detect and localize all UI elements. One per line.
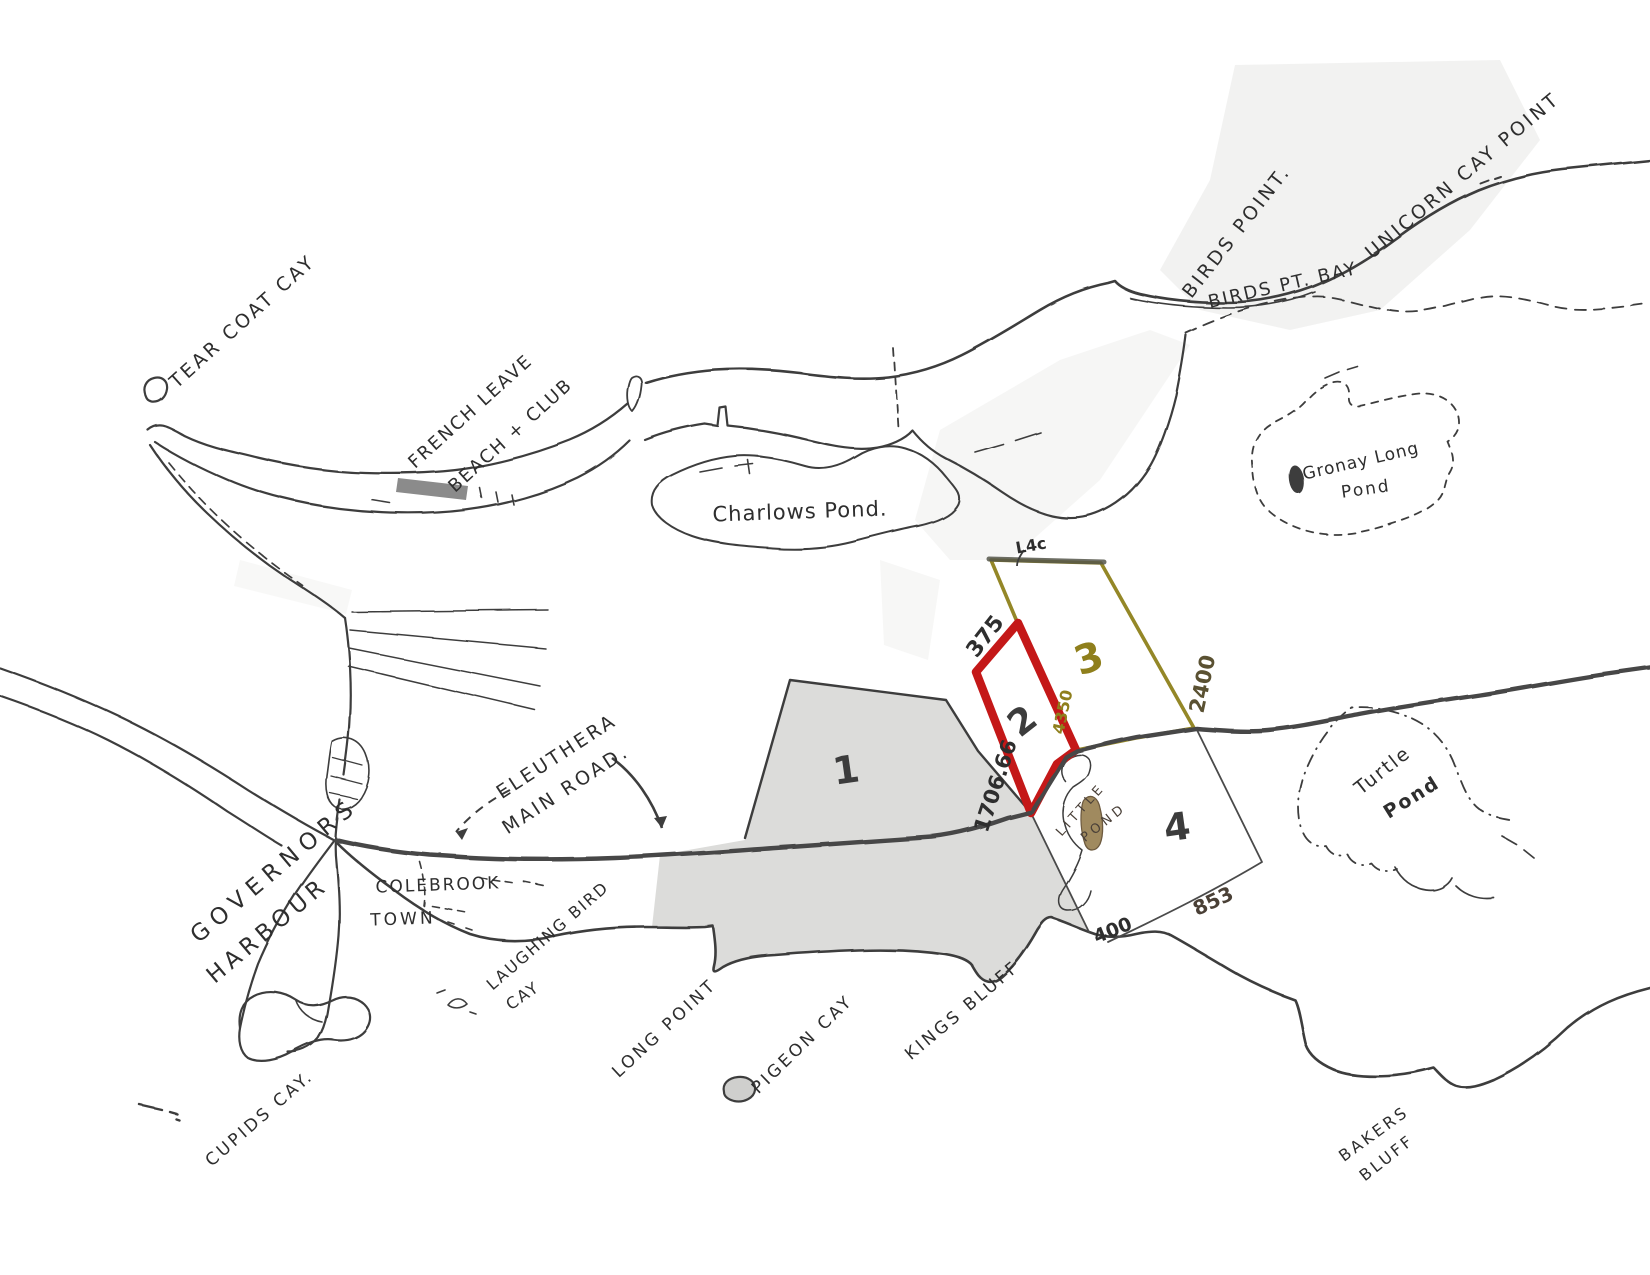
map-linework — [0, 0, 1650, 1275]
colebrook-town-label-line1: COLEBROOK — [375, 875, 500, 896]
scanned-survey-map: TEAR COAT CAY FRENCH LEAVE BEACH + CLUB … — [0, 0, 1650, 1275]
parcel-1-number: 1 — [830, 749, 861, 790]
scan-shading — [234, 60, 1540, 660]
parcel-3-top-edge — [989, 559, 1104, 562]
parcel-4-number: 4 — [1161, 806, 1192, 847]
colebrook-town-label-line2: TOWN — [370, 910, 436, 929]
